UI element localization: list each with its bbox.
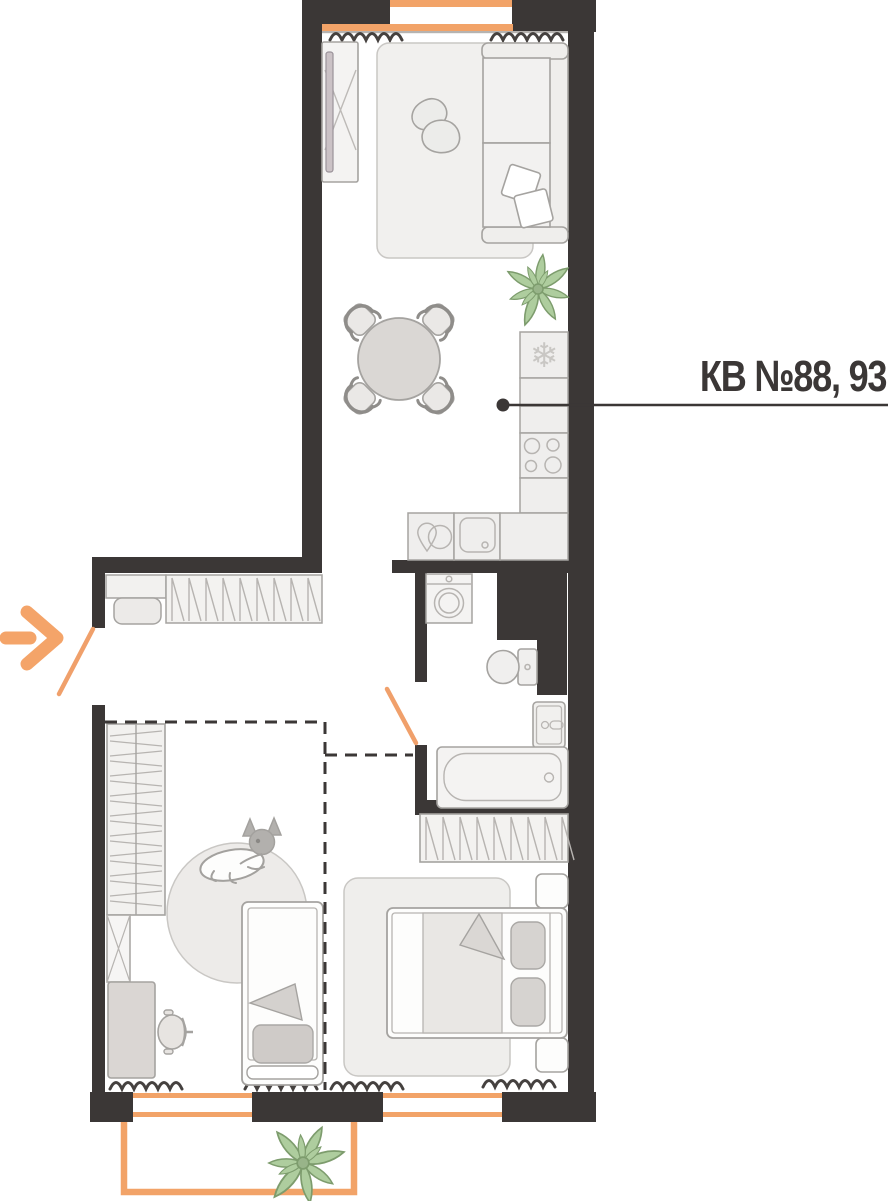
floor-plan: ❄: [0, 0, 888, 1201]
bathtub-icon: [437, 747, 568, 808]
top-balcony-rail: [390, 0, 512, 7]
wall-left-top: [302, 0, 322, 573]
dishwasher: [408, 513, 454, 560]
dining-set: [338, 298, 459, 419]
duct-shaft-lower: [537, 640, 567, 695]
sofa-armrest-bottom: [482, 227, 568, 243]
wall-corner-bottom-right: [502, 1092, 596, 1122]
bottom-window-left-glazing-1: [133, 1093, 252, 1098]
bath-sink-icon: [533, 702, 565, 748]
dog-head: [250, 830, 275, 855]
toilet-icon: [487, 649, 537, 685]
sofa-armrest-top: [482, 43, 568, 59]
sofa-back: [549, 55, 568, 230]
counter-segment-1: [520, 378, 568, 406]
bottom-window-right-glazing-2: [383, 1112, 502, 1117]
bottom-window-left-glazing-2: [133, 1112, 252, 1117]
bathroom-door-swing: [387, 689, 416, 743]
bed-pillow-2: [511, 978, 545, 1026]
wall-corner-bottom-left: [90, 1092, 133, 1122]
bottom-window-right-glazing-1: [383, 1093, 502, 1098]
living-room-plant-icon: [506, 254, 571, 326]
bed-pillow-1: [511, 922, 545, 969]
corner-sofa: [482, 43, 568, 243]
counter-segment-2: [520, 406, 568, 433]
balcony-plant-icon: [253, 1112, 352, 1201]
child-bed: [242, 902, 323, 1085]
sofa-pillow-2: [514, 188, 554, 228]
wall-pier-top-left: [322, 0, 390, 25]
desk-chair: [158, 1010, 193, 1054]
bedroom: [344, 814, 574, 1076]
nightstand-top: [536, 874, 568, 908]
bed-sheet: [423, 913, 502, 1033]
wall-left-bottom: [92, 705, 105, 1122]
wall-entry-stub: [92, 557, 105, 628]
wall-pier-bottom-middle: [252, 1092, 383, 1122]
entry-pouf: [114, 598, 161, 624]
children-room: [107, 724, 323, 1085]
x-cabinet: [107, 915, 130, 982]
counter-segment-3: [520, 478, 568, 513]
desk: [108, 982, 155, 1078]
duct-shaft-upper: [497, 570, 567, 640]
dining-table: [358, 318, 440, 400]
wall-bath-left-upper: [415, 573, 427, 682]
entry-hall: [106, 575, 322, 624]
child-pillow: [253, 1025, 313, 1063]
entry-console: [106, 575, 166, 598]
washing-machine-icon: [426, 574, 472, 623]
snowflake-icon: ❄: [530, 336, 559, 376]
child-bed-footboard: [247, 1066, 318, 1079]
tv-screen: [326, 52, 333, 172]
sofa-seat-1: [483, 58, 550, 143]
wall-hall-top: [92, 557, 322, 573]
apartment-label: КВ №88, 93: [700, 352, 886, 402]
entry-door-swing: [59, 629, 93, 694]
top-window-glazing: [322, 24, 513, 31]
tv-stand: [322, 42, 358, 182]
corner-counter: [500, 513, 568, 560]
nightstand-bottom: [536, 1038, 568, 1072]
entry-arrow-icon: [6, 612, 57, 664]
double-bed: [387, 908, 567, 1038]
wall-right: [568, 0, 594, 1122]
